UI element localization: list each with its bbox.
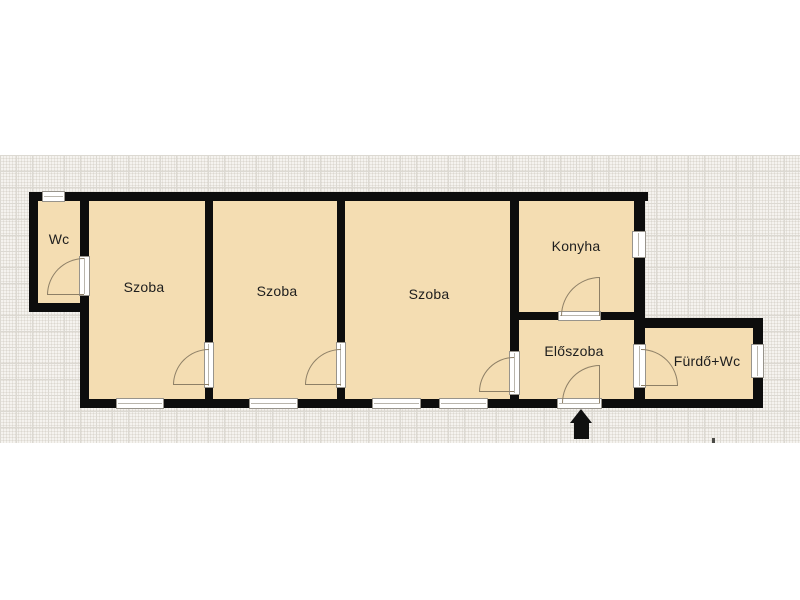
room-label-konyha: Konyha — [552, 238, 601, 254]
room-label-eloszoba: Előszoba — [544, 343, 603, 359]
window-szoba2-bottom — [249, 398, 298, 409]
window-szoba1-bottom — [116, 398, 164, 409]
room-label-szoba-2: Szoba — [257, 283, 298, 299]
entrance-arrow-shaft — [574, 422, 589, 439]
floorplan-canvas: Wc Szoba Szoba Szoba Konyha Előszoba Für… — [0, 0, 800, 600]
room-label-furdo-wc: Fürdő+Wc — [674, 353, 741, 369]
window-konyha-right — [632, 231, 646, 258]
window-szoba3-bottom-right — [439, 398, 488, 409]
room-label-szoba-3: Szoba — [409, 286, 450, 302]
entrance-arrow-head — [570, 409, 592, 423]
room-label-szoba-1: Szoba — [124, 279, 165, 295]
wall-exterior-bottom — [80, 399, 763, 408]
window-furdo-right — [751, 344, 764, 378]
window-szoba3-bottom-left — [372, 398, 421, 409]
entrance-arrow-icon — [570, 409, 593, 439]
wall-wc-bottom — [29, 303, 83, 312]
window-wc-top — [42, 191, 65, 202]
room-label-wc: Wc — [49, 231, 70, 247]
wall-furdo-top — [634, 318, 763, 328]
wall-exterior-left — [29, 192, 38, 312]
wall-szoba1-left — [80, 192, 89, 408]
scan-artifact-mark — [712, 438, 715, 443]
